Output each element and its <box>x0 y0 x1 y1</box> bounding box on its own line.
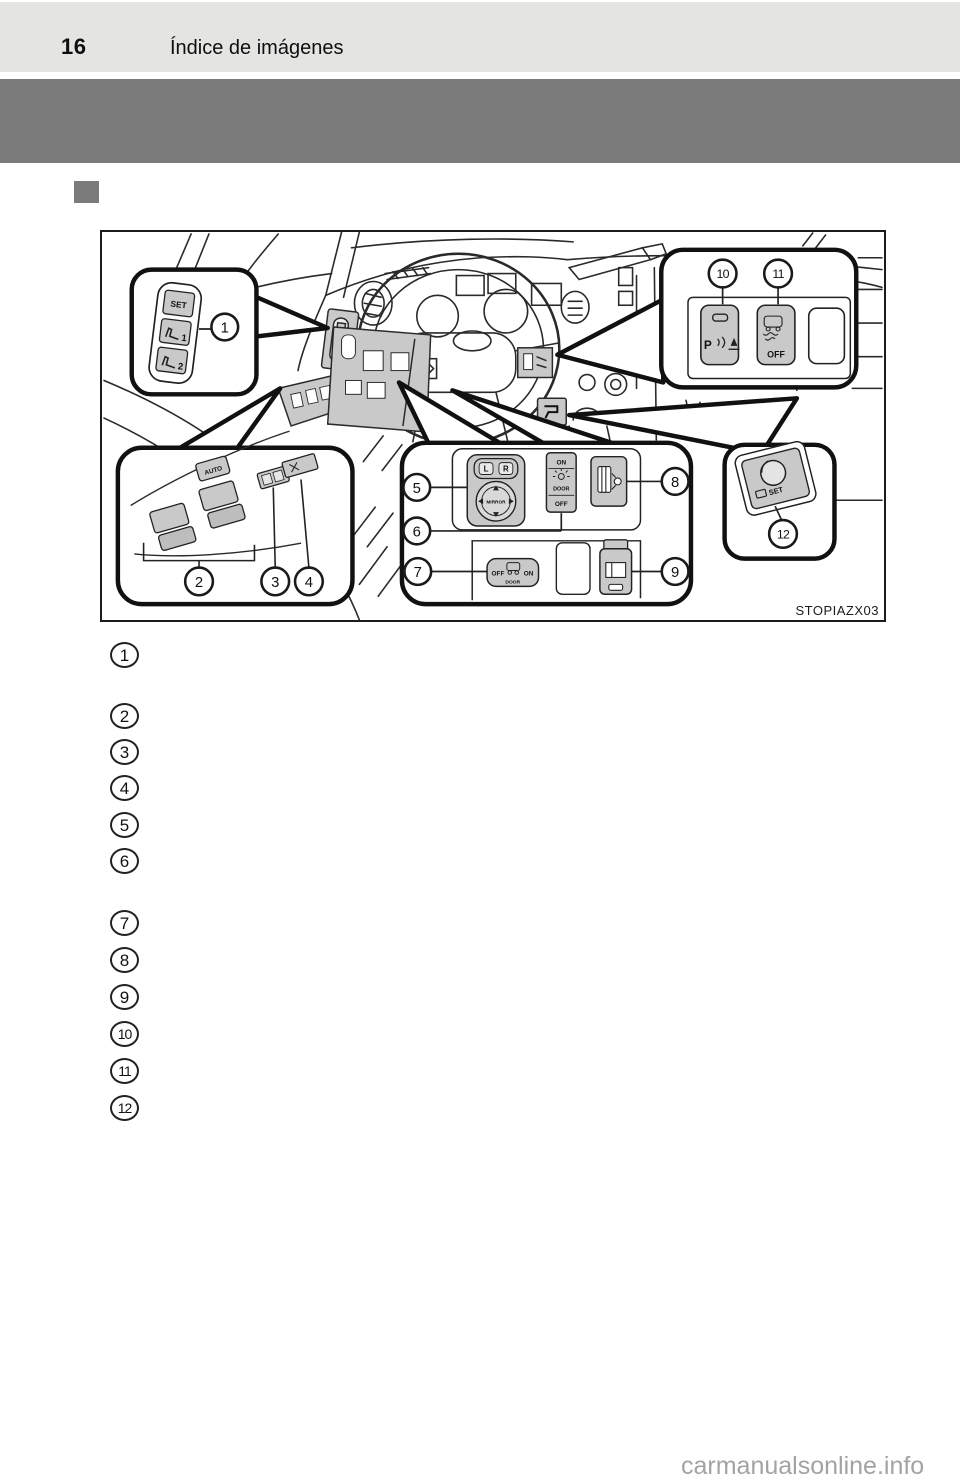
figure-code: STOPIAZX03 <box>791 603 879 618</box>
dashboard-figure: SET 1 2 AUTO <box>100 230 886 622</box>
vsc-off-label: OFF <box>767 350 785 360</box>
callout-12: 12 <box>769 520 797 548</box>
parking-sonar-button: P <box>701 305 740 364</box>
mirror-control-switch: L R MIRROR <box>467 455 524 526</box>
svg-text:6: 6 <box>413 524 421 540</box>
list-item-number-4: 4 <box>110 775 139 801</box>
list-item-number-3: 3 <box>110 739 139 765</box>
svg-text:2: 2 <box>195 575 203 591</box>
svg-text:10: 10 <box>717 267 730 281</box>
manual-page: 16 Índice de imágenes <box>0 0 960 1484</box>
rear-window-switch <box>591 457 627 506</box>
page-number: 16 <box>61 34 86 60</box>
room-light-off-label: OFF <box>555 501 568 508</box>
list-item-number-7: 7 <box>110 910 139 936</box>
callout-5: 5 <box>403 474 430 501</box>
header-band: 16 Índice de imágenes <box>0 2 960 72</box>
svg-text:8: 8 <box>671 475 679 491</box>
mirror-right-label: R <box>503 465 509 474</box>
list-item-number-9: 9 <box>110 984 139 1010</box>
page-title: Índice de imágenes <box>170 37 343 60</box>
svg-text:11: 11 <box>772 267 784 281</box>
list-item-number-11: 11 <box>110 1058 139 1084</box>
room-light-door-label: DOOR <box>553 486 569 492</box>
svg-text:3: 3 <box>271 575 279 591</box>
callout-9: 9 <box>662 558 689 585</box>
mirror-left-label: L <box>484 465 489 474</box>
svg-text:P: P <box>704 338 712 352</box>
list-item-number-12: 12 <box>110 1095 139 1121</box>
room-light-switch: ON DOOR OFF <box>546 453 576 512</box>
callout-7: 7 <box>404 558 431 585</box>
callout-2: 2 <box>185 568 213 596</box>
door-light-off-label: OFF <box>492 570 505 577</box>
callout-4: 4 <box>295 568 323 596</box>
door-light-door-label: DOOR <box>505 579 520 585</box>
list-item-number-2: 2 <box>110 703 139 729</box>
callout-11: 11 <box>764 260 792 288</box>
list-item-number-10: 10 <box>110 1021 139 1047</box>
svg-text:4: 4 <box>305 575 313 591</box>
lower-dash-switch-location <box>518 348 553 378</box>
list-item-number-5: 5 <box>110 812 139 838</box>
list-item-number-6: 6 <box>110 848 139 874</box>
callout-6: 6 <box>403 518 430 545</box>
callout-10: 10 <box>709 260 737 288</box>
svg-text:9: 9 <box>671 565 679 581</box>
dashboard-diagram: SET 1 2 AUTO <box>102 232 884 620</box>
vsc-off-button: OFF <box>757 305 795 364</box>
callout-3: 3 <box>261 568 289 596</box>
back-window-switch <box>600 540 632 594</box>
list-item-number-1: 1 <box>110 642 139 668</box>
door-light-on-label: ON <box>524 570 534 577</box>
list-item-number-8: 8 <box>110 947 139 973</box>
callout-1: 1 <box>211 314 238 341</box>
seat-memory-set-label: SET <box>170 298 188 310</box>
svg-text:1: 1 <box>221 320 229 336</box>
mirror-knob-label: MIRROR <box>486 500 506 506</box>
svg-text:5: 5 <box>413 481 421 497</box>
svg-text:7: 7 <box>414 565 422 581</box>
section-heading-band <box>0 79 960 163</box>
door-light-switch: OFF ON DOOR <box>487 559 538 587</box>
window-icon <box>606 563 626 591</box>
watermark-link[interactable]: carmanualsonline.info <box>681 1452 924 1481</box>
section-marker-square <box>74 181 99 203</box>
callout-8: 8 <box>662 468 689 495</box>
svg-text:12: 12 <box>777 527 790 541</box>
room-light-on-label: ON <box>556 460 566 467</box>
